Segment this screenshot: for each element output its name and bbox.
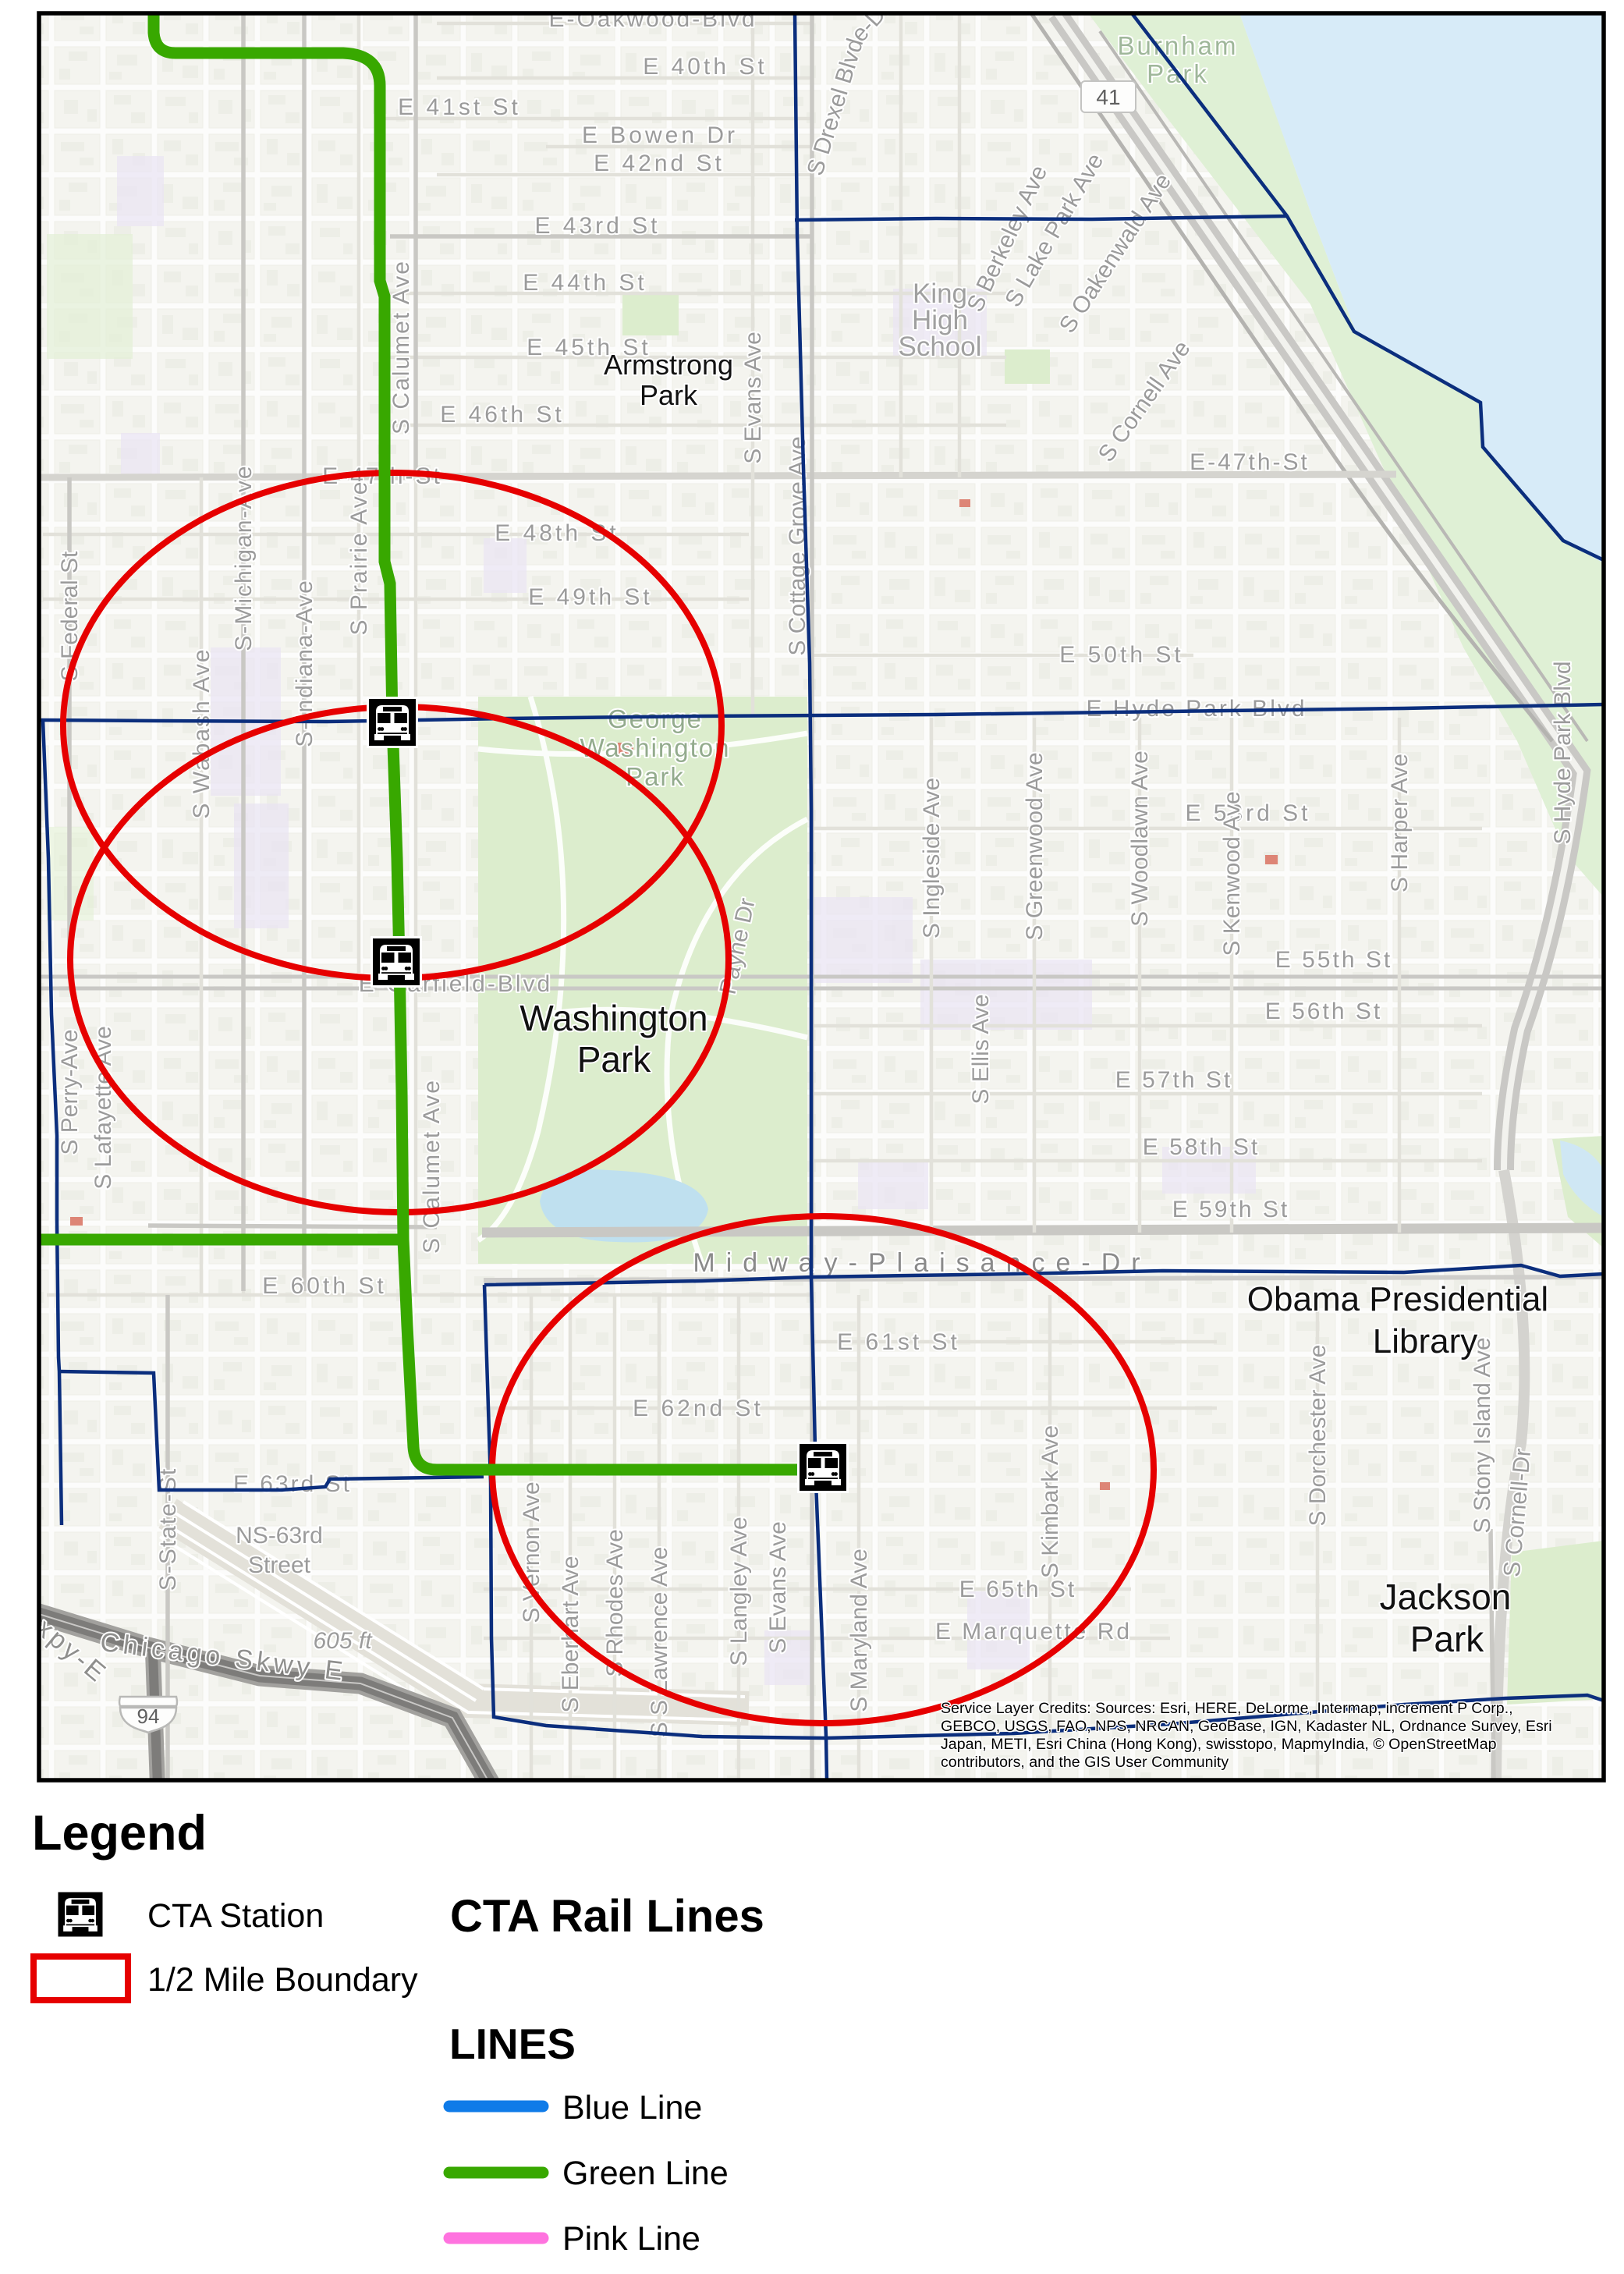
svg-text:GEBCO, USGS, FAO, NPS, NRCAN,: GEBCO, USGS, FAO, NPS, NRCAN, GeoBase, I…: [941, 1718, 1552, 1735]
svg-text:1/2 Mile Boundary: 1/2 Mile Boundary: [147, 1961, 418, 1999]
svg-text:S Calumet Ave: S Calumet Ave: [419, 1079, 445, 1254]
svg-text:S Ellis Ave: S Ellis Ave: [968, 994, 994, 1104]
svg-text:Library: Library: [1373, 1322, 1478, 1360]
svg-text:S Wabash Ave: S Wabash Ave: [189, 647, 215, 818]
svg-text:S Prairie Ave: S Prairie Ave: [346, 481, 372, 636]
svg-text:E 65th St: E 65th St: [959, 1577, 1076, 1602]
svg-text:S Dorchester Ave: S Dorchester Ave: [1305, 1345, 1331, 1527]
svg-text:S Hyde Park Blvd: S Hyde Park Blvd: [1550, 661, 1576, 844]
svg-text:S Greenwood Ave: S Greenwood Ave: [1022, 752, 1048, 940]
svg-text:E Bowen Dr: E Bowen Dr: [582, 122, 738, 148]
svg-text:S Woodlawn Ave: S Woodlawn Ave: [1127, 750, 1153, 927]
svg-text:Park: Park: [626, 762, 685, 791]
svg-text:S Kenwood Ave: S Kenwood Ave: [1219, 791, 1245, 956]
svg-text:E 60th St: E 60th St: [262, 1273, 386, 1299]
svg-text:Blue Line: Blue Line: [562, 2089, 702, 2127]
svg-text:E 59th St: E 59th St: [1172, 1197, 1289, 1222]
svg-text:Jackson: Jackson: [1380, 1577, 1512, 1617]
svg-text:Park: Park: [577, 1039, 652, 1080]
svg-text:E 41st St: E 41st St: [398, 94, 521, 120]
svg-text:LINES: LINES: [449, 2020, 576, 2068]
svg-text:Street: Street: [248, 1552, 311, 1578]
svg-text:E 44th St: E 44th St: [523, 270, 647, 296]
svg-text:contributors, and the GIS User: contributors, and the GIS User Community: [941, 1754, 1229, 1771]
svg-text:S Langley Ave: S Langley Ave: [726, 1517, 752, 1666]
svg-text:E 63rd St: E 63rd St: [233, 1471, 352, 1497]
svg-text:George: George: [608, 704, 703, 733]
svg-text:CTA Station: CTA Station: [147, 1897, 324, 1935]
svg-text:S Perry-Ave: S Perry-Ave: [57, 1029, 83, 1155]
svg-text:School: School: [898, 332, 981, 362]
svg-text:Green Line: Green Line: [562, 2155, 729, 2192]
svg-text:Park: Park: [1410, 1619, 1485, 1659]
svg-text:S Evans Ave: S Evans Ave: [740, 332, 766, 464]
svg-text:S Federal St: S Federal St: [57, 551, 83, 681]
svg-text:S Rhodes Ave: S Rhodes Ave: [602, 1529, 628, 1677]
svg-text:S-Michigan-Ave: S-Michigan-Ave: [231, 464, 257, 651]
svg-text:Washington: Washington: [519, 998, 707, 1038]
svg-text:E 56th St: E 56th St: [1265, 999, 1382, 1024]
svg-text:E 42nd St: E 42nd St: [594, 151, 725, 176]
svg-text:605 ft: 605 ft: [313, 1628, 373, 1654]
svg-text:Burnham: Burnham: [1118, 31, 1239, 60]
svg-text:S S Lawrence Ave: S S Lawrence Ave: [647, 1547, 672, 1738]
svg-text:E 50th St: E 50th St: [1059, 642, 1183, 668]
svg-text:S Kimbark Ave: S Kimbark Ave: [1037, 1425, 1063, 1578]
svg-text:Legend: Legend: [32, 1806, 207, 1861]
svg-text:E Marquette Rd: E Marquette Rd: [935, 1619, 1132, 1644]
svg-text:S Stony Island Ave: S Stony Island Ave: [1470, 1337, 1495, 1533]
svg-text:Pink Line: Pink Line: [562, 2220, 700, 2258]
svg-text:S Ingleside Ave: S Ingleside Ave: [919, 778, 945, 938]
svg-text:Park: Park: [640, 379, 698, 411]
svg-text:E 58th St: E 58th St: [1143, 1134, 1260, 1160]
svg-text:E 46th St: E 46th St: [440, 402, 564, 427]
svg-text:E 61st St: E 61st St: [837, 1329, 960, 1355]
svg-text:E 43rd St: E 43rd St: [534, 213, 660, 239]
svg-text:CTA Rail Lines: CTA Rail Lines: [450, 1891, 764, 1942]
svg-text:S Calumet Ave: S Calumet Ave: [388, 260, 414, 435]
svg-text:S Harper Ave: S Harper Ave: [1387, 754, 1413, 892]
svg-text:S Evans Ave: S Evans Ave: [765, 1521, 791, 1654]
svg-text:Japan, METI, Esri China (Hong: Japan, METI, Esri China (Hong Kong), swi…: [941, 1736, 1497, 1753]
svg-text:Service Layer Credits: Sources: Service Layer Credits: Sources: Esri, HE…: [941, 1700, 1513, 1717]
svg-text:E-47th-St: E-47th-St: [1190, 449, 1310, 475]
svg-text:E 62nd St: E 62nd St: [633, 1396, 764, 1421]
svg-text:E-Oakwood-Blvd: E-Oakwood-Blvd: [548, 6, 757, 32]
svg-text:E 53rd St: E 53rd St: [1185, 800, 1310, 826]
svg-text:E 49th St: E 49th St: [528, 584, 652, 610]
svg-text:S Maryland Ave: S Maryland Ave: [846, 1549, 872, 1712]
svg-text:E 57th St: E 57th St: [1115, 1067, 1232, 1093]
svg-text:E 55th St: E 55th St: [1275, 947, 1392, 973]
svg-text:Obama Presidential: Obama Presidential: [1247, 1280, 1548, 1318]
svg-text:Armstrong: Armstrong: [604, 349, 733, 381]
svg-text:NS-63rd: NS-63rd: [236, 1523, 323, 1549]
svg-text:41: 41: [1096, 85, 1120, 109]
svg-text:E 40th St: E 40th St: [643, 54, 767, 80]
svg-text:94: 94: [137, 1705, 160, 1728]
